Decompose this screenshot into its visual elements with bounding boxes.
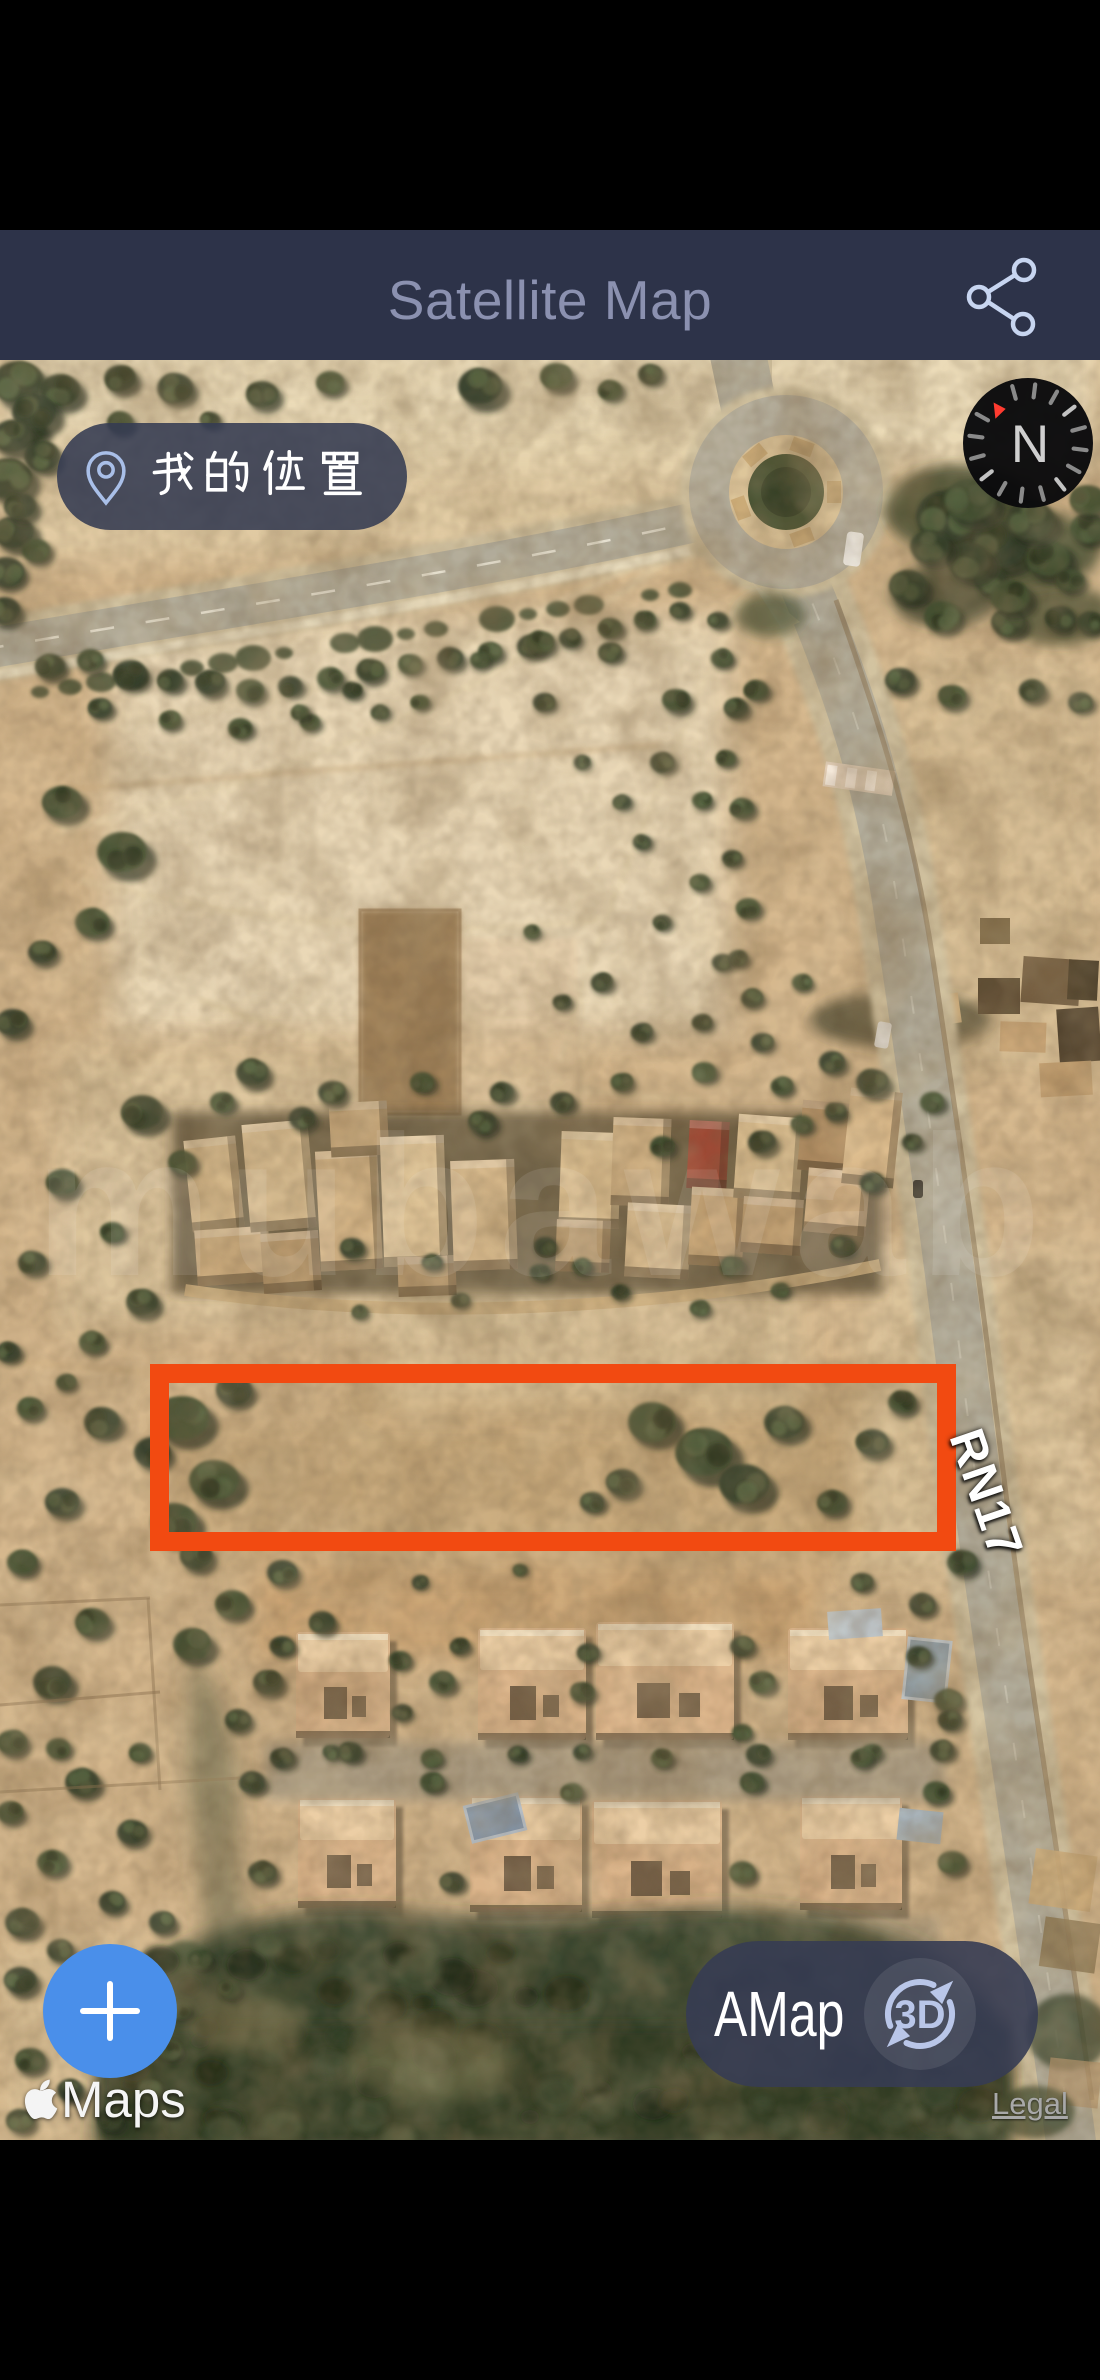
svg-text:mubawab: mubawab [35, 1095, 1055, 1318]
svg-text:N: N [1011, 415, 1049, 474]
svg-text:3D: 3D [894, 1993, 945, 2037]
